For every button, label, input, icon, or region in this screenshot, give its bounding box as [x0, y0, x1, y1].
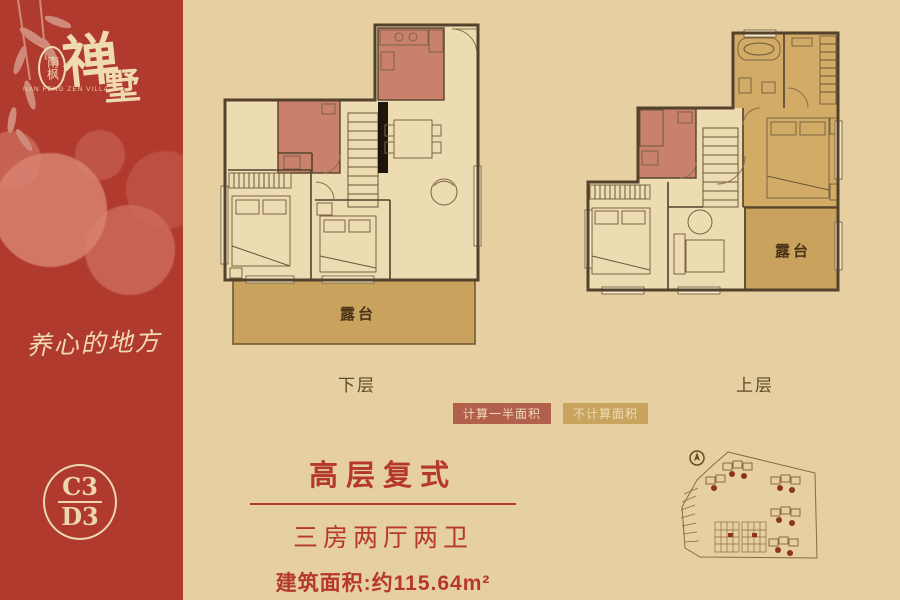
- title-divider: [250, 503, 516, 505]
- lower-terrace: 露台: [233, 280, 475, 344]
- lower-floor-plan: 露台: [216, 16, 496, 356]
- brand-name-char2: 墅: [102, 57, 142, 111]
- site-plan: [668, 432, 898, 600]
- legend-no-area: 不计算面积: [563, 403, 648, 424]
- upper-floor-label: 上层: [736, 371, 774, 396]
- unit-info: 高层复式 三房两厅两卫 建筑面积:约115.64m²: [223, 452, 543, 597]
- road-hatch: [681, 488, 699, 542]
- unit-code-badge: C3 D3: [43, 464, 117, 540]
- legend-half-area-label: 计算一半面积: [463, 405, 541, 422]
- lowrise-grid: [715, 522, 766, 552]
- area-legend: 计算一半面积 不计算面积: [453, 403, 648, 424]
- brand-sidebar: 南枫 禅 墅 NAN FENG ZEN VILLA 养心的地方 C3 D3: [0, 0, 183, 600]
- stair-wall: [378, 102, 388, 173]
- main-area: 露台: [183, 0, 900, 600]
- seal-text: 南枫: [46, 56, 59, 80]
- lower-kitchen: [378, 28, 444, 100]
- svg-text:露台: 露台: [340, 305, 376, 323]
- lower-floor-label: 下层: [338, 371, 376, 396]
- unit-type-title: 高层复式: [223, 452, 543, 494]
- compass-icon: [690, 451, 704, 465]
- lower-bathroom: [278, 100, 340, 173]
- unit-rooms: 三房两厅两卫: [223, 518, 543, 554]
- brand-logo: 南枫 禅 墅 NAN FENG ZEN VILLA: [0, 0, 183, 140]
- master-bedroom-floor: [743, 108, 838, 207]
- brand-slogan: 养心的地方: [7, 321, 180, 363]
- unit-code-bottom: D3: [61, 504, 99, 530]
- unit-code-top: C3: [62, 474, 98, 500]
- brand-name-en: NAN FENG ZEN VILLA: [23, 86, 109, 93]
- unit-area: 建筑面积:约115.64m²: [223, 567, 543, 597]
- upper-floor-plan: 露台: [582, 26, 847, 311]
- poster-canvas: 南枫 禅 墅 NAN FENG ZEN VILLA 养心的地方 C3 D3 露台: [0, 0, 900, 600]
- svg-text:露台: 露台: [775, 242, 811, 260]
- legend-no-area-label: 不计算面积: [573, 405, 638, 422]
- legend-half-area: 计算一半面积: [453, 403, 551, 424]
- upper-bathroom-red: [638, 108, 696, 178]
- site-boundary: [682, 452, 817, 558]
- upper-terrace: 露台: [745, 208, 838, 290]
